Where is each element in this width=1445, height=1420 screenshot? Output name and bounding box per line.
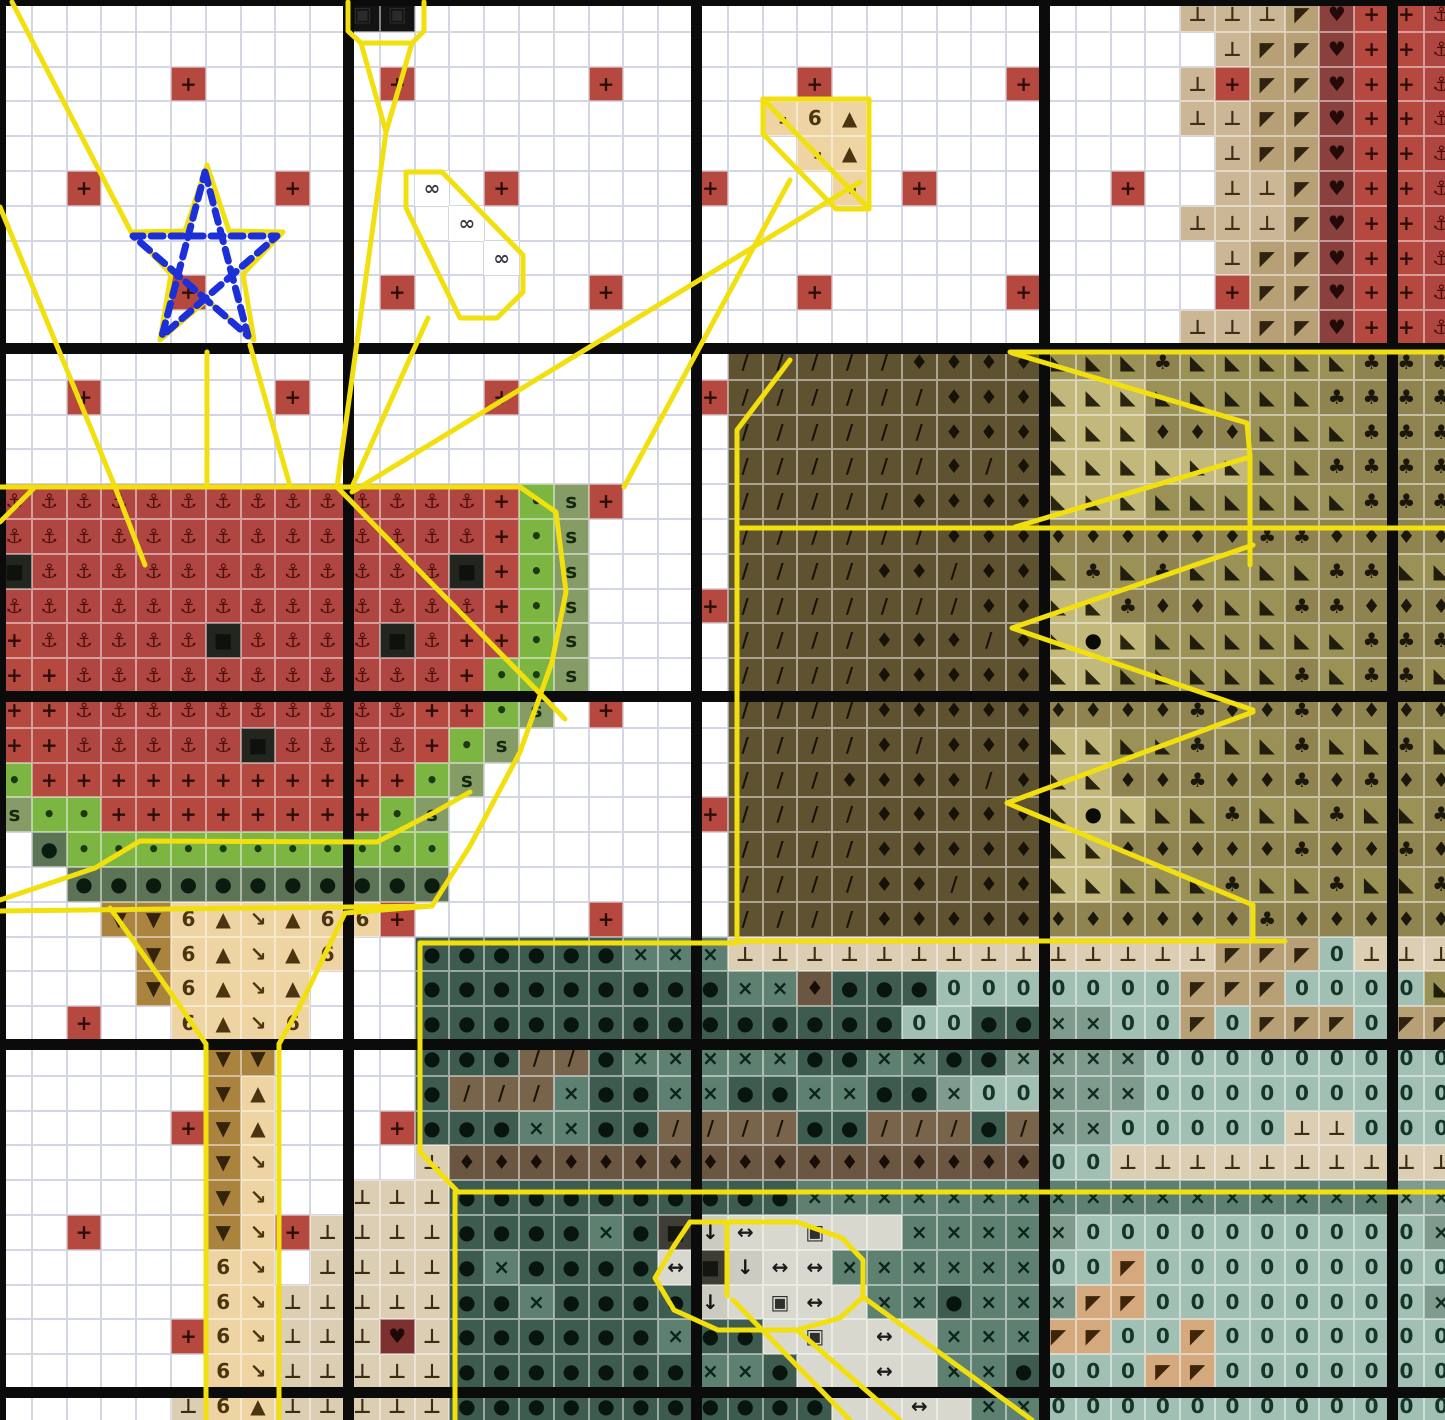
stitch-cell[interactable] xyxy=(658,902,693,937)
stitch-cell[interactable]: ▼ xyxy=(206,1215,241,1250)
stitch-cell[interactable]: ⚓ xyxy=(275,623,310,658)
stitch-cell[interactable]: ⊥ xyxy=(415,1215,450,1250)
stitch-cell[interactable]: ♣ xyxy=(1285,658,1320,693)
stitch-cell[interactable]: ♦ xyxy=(1145,415,1180,450)
stitch-cell[interactable]: ♦ xyxy=(937,763,972,798)
stitch-cell[interactable] xyxy=(310,275,345,310)
stitch-cell[interactable]: ♦ xyxy=(832,1145,867,1180)
stitch-cell[interactable] xyxy=(275,32,310,67)
stitch-cell[interactable]: • xyxy=(310,832,345,867)
stitch-cell[interactable]: • xyxy=(206,832,241,867)
stitch-cell[interactable]: ⚓ xyxy=(101,589,136,624)
stitch-cell[interactable]: + xyxy=(275,171,310,206)
stitch-cell[interactable]: • xyxy=(380,797,415,832)
stitch-cell[interactable]: × xyxy=(1076,1180,1111,1215)
stitch-cell[interactable]: 6 xyxy=(310,937,345,972)
stitch-cell[interactable]: ● xyxy=(763,1006,798,1041)
stitch-cell[interactable]: ↘ xyxy=(241,1215,276,1250)
stitch-cell[interactable]: / xyxy=(728,623,763,658)
stitch-cell[interactable] xyxy=(937,171,972,206)
stitch-cell[interactable]: ♦ xyxy=(937,484,972,519)
stitch-cell[interactable]: ♦ xyxy=(484,1145,519,1180)
stitch-cell[interactable]: ⚓ xyxy=(1424,206,1445,241)
stitch-cell[interactable]: ◣ xyxy=(1111,867,1146,902)
stitch-cell[interactable] xyxy=(1145,241,1180,276)
stitch-cell[interactable] xyxy=(275,1111,310,1146)
stitch-cell[interactable]: ◣ xyxy=(1319,658,1354,693)
stitch-cell[interactable] xyxy=(101,1319,136,1354)
stitch-cell[interactable]: ● xyxy=(519,1180,554,1215)
stitch-cell[interactable]: • xyxy=(171,832,206,867)
stitch-cell[interactable]: ● xyxy=(797,1111,832,1146)
stitch-cell[interactable]: / xyxy=(728,658,763,693)
stitch-cell[interactable] xyxy=(310,1076,345,1111)
stitch-cell[interactable]: ◤ xyxy=(1285,136,1320,171)
stitch-cell[interactable]: ⚓ xyxy=(101,484,136,519)
stitch-cell[interactable]: ♦ xyxy=(763,1145,798,1180)
stitch-cell[interactable]: + xyxy=(797,67,832,102)
stitch-cell[interactable]: ↘ xyxy=(241,902,276,937)
stitch-cell[interactable]: × xyxy=(1006,1250,1041,1285)
stitch-cell[interactable]: / xyxy=(832,867,867,902)
stitch-cell[interactable]: ♥ xyxy=(1319,101,1354,136)
stitch-cell[interactable]: ♦ xyxy=(867,554,902,589)
stitch-cell[interactable] xyxy=(832,1319,867,1354)
stitch-cell[interactable]: ♥ xyxy=(380,1319,415,1354)
stitch-cell[interactable]: ⚓ xyxy=(32,554,67,589)
stitch-cell[interactable]: + xyxy=(484,623,519,658)
stitch-cell[interactable] xyxy=(623,728,658,763)
stitch-cell[interactable]: × xyxy=(554,1111,589,1146)
stitch-cell[interactable]: ◤ xyxy=(1285,101,1320,136)
stitch-cell[interactable]: + xyxy=(484,554,519,589)
stitch-cell[interactable]: ⊥ xyxy=(310,1215,345,1250)
stitch-cell[interactable] xyxy=(171,310,206,345)
stitch-cell[interactable]: 0 xyxy=(1319,1354,1354,1389)
stitch-cell[interactable]: / xyxy=(797,484,832,519)
stitch-cell[interactable]: × xyxy=(1076,1076,1111,1111)
stitch-cell[interactable]: ◣ xyxy=(1285,449,1320,484)
stitch-cell[interactable] xyxy=(380,415,415,450)
stitch-cell[interactable]: × xyxy=(797,1180,832,1215)
stitch-cell[interactable] xyxy=(1111,101,1146,136)
stitch-cell[interactable]: 0 xyxy=(1215,1354,1250,1389)
stitch-cell[interactable]: × xyxy=(1111,1180,1146,1215)
stitch-cell[interactable]: 0 xyxy=(1145,1076,1180,1111)
stitch-cell[interactable] xyxy=(484,763,519,798)
stitch-cell[interactable]: ♦ xyxy=(1006,763,1041,798)
stitch-cell[interactable] xyxy=(415,310,450,345)
stitch-cell[interactable] xyxy=(589,832,624,867)
stitch-cell[interactable]: / xyxy=(763,763,798,798)
stitch-cell[interactable] xyxy=(310,1111,345,1146)
stitch-cell[interactable] xyxy=(310,415,345,450)
stitch-cell[interactable]: ● xyxy=(658,1006,693,1041)
stitch-cell[interactable]: ● xyxy=(449,1285,484,1320)
stitch-cell[interactable]: 0 xyxy=(937,971,972,1006)
stitch-cell[interactable]: ◣ xyxy=(1111,797,1146,832)
stitch-cell[interactable]: • xyxy=(101,832,136,867)
stitch-cell[interactable]: ● xyxy=(658,971,693,1006)
stitch-cell[interactable] xyxy=(67,1285,102,1320)
stitch-cell[interactable] xyxy=(658,67,693,102)
stitch-cell[interactable]: ♦ xyxy=(867,658,902,693)
stitch-cell[interactable]: 0 xyxy=(1250,1076,1285,1111)
stitch-cell[interactable] xyxy=(380,380,415,415)
stitch-cell[interactable]: ♦ xyxy=(902,867,937,902)
stitch-cell[interactable]: ◣ xyxy=(1319,728,1354,763)
stitch-cell[interactable]: / xyxy=(728,449,763,484)
stitch-cell[interactable]: ⊥ xyxy=(1215,241,1250,276)
stitch-cell[interactable] xyxy=(32,1250,67,1285)
stitch-cell[interactable]: ● xyxy=(67,867,102,902)
stitch-cell[interactable]: ♣ xyxy=(1111,589,1146,624)
stitch-cell[interactable]: ◣ xyxy=(1319,484,1354,519)
stitch-cell[interactable] xyxy=(554,275,589,310)
stitch-cell[interactable]: • xyxy=(519,623,554,658)
stitch-cell[interactable] xyxy=(101,206,136,241)
stitch-cell[interactable]: ♥ xyxy=(1319,136,1354,171)
stitch-cell[interactable]: ● xyxy=(623,1285,658,1320)
stitch-cell[interactable]: 0 xyxy=(1006,971,1041,1006)
stitch-cell[interactable]: ♦ xyxy=(1076,902,1111,937)
stitch-cell[interactable]: ◣ xyxy=(1111,380,1146,415)
stitch-cell[interactable]: ● xyxy=(589,1111,624,1146)
stitch-cell[interactable]: ⊥ xyxy=(380,1285,415,1320)
stitch-cell[interactable] xyxy=(832,310,867,345)
stitch-cell[interactable] xyxy=(449,902,484,937)
stitch-cell[interactable]: / xyxy=(937,554,972,589)
stitch-cell[interactable]: ⚓ xyxy=(32,484,67,519)
stitch-cell[interactable]: ⚓ xyxy=(380,554,415,589)
stitch-cell[interactable] xyxy=(763,1215,798,1250)
stitch-cell[interactable] xyxy=(832,1215,867,1250)
stitch-cell[interactable] xyxy=(275,101,310,136)
stitch-cell[interactable]: ◣ xyxy=(1250,380,1285,415)
stitch-cell[interactable] xyxy=(867,310,902,345)
stitch-cell[interactable]: ⊥ xyxy=(1180,1145,1215,1180)
stitch-cell[interactable]: ♦ xyxy=(1424,832,1445,867)
stitch-cell[interactable] xyxy=(241,275,276,310)
stitch-cell[interactable]: × xyxy=(832,1076,867,1111)
stitch-cell[interactable]: / xyxy=(797,902,832,937)
stitch-cell[interactable]: + xyxy=(1006,275,1041,310)
stitch-cell[interactable]: • xyxy=(519,519,554,554)
stitch-cell[interactable]: ⚓ xyxy=(32,519,67,554)
stitch-cell[interactable] xyxy=(658,206,693,241)
stitch-cell[interactable]: / xyxy=(763,589,798,624)
stitch-cell[interactable]: 0 xyxy=(1076,1145,1111,1180)
stitch-cell[interactable]: / xyxy=(867,449,902,484)
stitch-cell[interactable]: ↘ xyxy=(241,937,276,972)
stitch-cell[interactable]: ⚓ xyxy=(136,484,171,519)
stitch-cell[interactable]: ● xyxy=(763,1180,798,1215)
stitch-cell[interactable]: 0 xyxy=(1250,1215,1285,1250)
stitch-cell[interactable]: × xyxy=(971,1250,1006,1285)
stitch-cell[interactable]: ◤ xyxy=(1215,971,1250,1006)
stitch-cell[interactable]: ▼ xyxy=(136,971,171,1006)
stitch-cell[interactable]: 0 xyxy=(1424,1319,1445,1354)
stitch-cell[interactable]: ● xyxy=(554,971,589,1006)
stitch-cell[interactable]: ◤ xyxy=(1180,1354,1215,1389)
stitch-cell[interactable]: ◣ xyxy=(1285,554,1320,589)
stitch-cell[interactable]: ⚓ xyxy=(310,554,345,589)
stitch-cell[interactable]: + xyxy=(32,658,67,693)
stitch-cell[interactable]: ⚓ xyxy=(415,519,450,554)
stitch-cell[interactable] xyxy=(67,415,102,450)
stitch-cell[interactable]: • xyxy=(275,832,310,867)
stitch-cell[interactable] xyxy=(658,136,693,171)
stitch-cell[interactable] xyxy=(136,1145,171,1180)
stitch-cell[interactable]: / xyxy=(763,797,798,832)
stitch-cell[interactable]: ⊥ xyxy=(1424,1145,1445,1180)
stitch-cell[interactable]: s xyxy=(554,658,589,693)
stitch-cell[interactable]: ● xyxy=(484,1006,519,1041)
stitch-cell[interactable]: ● xyxy=(449,971,484,1006)
stitch-cell[interactable]: ● xyxy=(589,1250,624,1285)
stitch-cell[interactable]: ♦ xyxy=(1006,728,1041,763)
stitch-cell[interactable]: ◣ xyxy=(1250,484,1285,519)
stitch-cell[interactable]: ● xyxy=(380,867,415,902)
stitch-cell[interactable]: / xyxy=(937,589,972,624)
stitch-cell[interactable] xyxy=(971,32,1006,67)
stitch-cell[interactable]: / xyxy=(937,867,972,902)
stitch-cell[interactable] xyxy=(171,206,206,241)
stitch-cell[interactable] xyxy=(589,589,624,624)
stitch-cell[interactable]: ♦ xyxy=(1006,484,1041,519)
stitch-cell[interactable]: ⚓ xyxy=(136,658,171,693)
stitch-cell[interactable]: 0 xyxy=(1285,971,1320,1006)
stitch-cell[interactable] xyxy=(832,1285,867,1320)
stitch-cell[interactable]: 0 xyxy=(1076,1354,1111,1389)
stitch-cell[interactable]: + xyxy=(67,380,102,415)
stitch-cell[interactable]: ● xyxy=(623,1319,658,1354)
stitch-cell[interactable]: ⊥ xyxy=(310,1285,345,1320)
stitch-cell[interactable]: / xyxy=(867,380,902,415)
stitch-cell[interactable]: ● xyxy=(1076,797,1111,832)
stitch-cell[interactable] xyxy=(275,136,310,171)
stitch-cell[interactable] xyxy=(241,101,276,136)
stitch-cell[interactable] xyxy=(32,1076,67,1111)
stitch-cell[interactable] xyxy=(867,171,902,206)
stitch-cell[interactable] xyxy=(937,275,972,310)
stitch-cell[interactable] xyxy=(589,32,624,67)
stitch-cell[interactable]: + xyxy=(1354,241,1389,276)
stitch-cell[interactable]: ◣ xyxy=(1111,554,1146,589)
stitch-cell[interactable]: × xyxy=(937,1354,972,1389)
stitch-cell[interactable]: + xyxy=(589,484,624,519)
stitch-cell[interactable] xyxy=(380,449,415,484)
stitch-cell[interactable]: ● xyxy=(589,937,624,972)
stitch-cell[interactable]: / xyxy=(728,728,763,763)
stitch-cell[interactable]: 0 xyxy=(1424,1111,1445,1146)
stitch-cell[interactable] xyxy=(415,67,450,102)
stitch-cell[interactable]: s xyxy=(554,554,589,589)
stitch-cell[interactable] xyxy=(554,136,589,171)
stitch-cell[interactable]: / xyxy=(797,797,832,832)
stitch-cell[interactable]: / xyxy=(797,554,832,589)
stitch-cell[interactable]: 6 xyxy=(206,1250,241,1285)
stitch-cell[interactable]: ♣ xyxy=(1354,484,1389,519)
stitch-cell[interactable]: ⚓ xyxy=(67,623,102,658)
stitch-cell[interactable] xyxy=(310,67,345,102)
stitch-cell[interactable] xyxy=(1180,136,1215,171)
stitch-cell[interactable]: ↘ xyxy=(763,101,798,136)
stitch-cell[interactable]: ◤ xyxy=(1250,275,1285,310)
stitch-cell[interactable]: ♣ xyxy=(1354,658,1389,693)
stitch-cell[interactable] xyxy=(589,136,624,171)
stitch-cell[interactable]: ⚓ xyxy=(206,658,241,693)
stitch-cell[interactable]: ↔ xyxy=(763,1250,798,1285)
stitch-cell[interactable] xyxy=(1111,136,1146,171)
stitch-cell[interactable] xyxy=(519,380,554,415)
stitch-cell[interactable] xyxy=(519,415,554,450)
stitch-cell[interactable]: 0 xyxy=(1354,1285,1389,1320)
stitch-cell[interactable] xyxy=(658,554,693,589)
stitch-cell[interactable]: × xyxy=(1250,1180,1285,1215)
stitch-cell[interactable]: / xyxy=(728,763,763,798)
stitch-cell[interactable] xyxy=(275,1250,310,1285)
stitch-cell[interactable]: ♦ xyxy=(1145,589,1180,624)
stitch-cell[interactable]: ◣ xyxy=(1145,728,1180,763)
stitch-cell[interactable]: + xyxy=(67,1215,102,1250)
stitch-cell[interactable]: ↘ xyxy=(832,171,867,206)
stitch-cell[interactable]: / xyxy=(797,415,832,450)
stitch-cell[interactable] xyxy=(658,519,693,554)
stitch-cell[interactable]: ♣ xyxy=(1285,728,1320,763)
stitch-cell[interactable]: × xyxy=(1424,1180,1445,1215)
stitch-cell[interactable]: + xyxy=(171,67,206,102)
stitch-cell[interactable]: ♦ xyxy=(1319,902,1354,937)
stitch-cell[interactable]: • xyxy=(136,832,171,867)
stitch-cell[interactable] xyxy=(554,171,589,206)
stitch-cell[interactable]: s xyxy=(554,484,589,519)
stitch-cell[interactable]: ◣ xyxy=(1424,728,1445,763)
stitch-cell[interactable]: ⚓ xyxy=(67,519,102,554)
stitch-cell[interactable]: ♦ xyxy=(937,902,972,937)
stitch-cell[interactable] xyxy=(101,1076,136,1111)
stitch-cell[interactable]: / xyxy=(797,623,832,658)
stitch-cell[interactable]: + xyxy=(1111,171,1146,206)
stitch-cell[interactable]: ⊥ xyxy=(380,1250,415,1285)
stitch-cell[interactable] xyxy=(136,241,171,276)
stitch-cell[interactable]: ⚓ xyxy=(275,554,310,589)
stitch-cell[interactable]: ♦ xyxy=(1180,832,1215,867)
stitch-cell[interactable]: × xyxy=(867,1285,902,1320)
stitch-cell[interactable] xyxy=(206,101,241,136)
stitch-cell[interactable] xyxy=(101,971,136,1006)
stitch-cell[interactable]: ♦ xyxy=(1285,902,1320,937)
stitch-cell[interactable]: / xyxy=(902,589,937,624)
stitch-cell[interactable]: ⚓ xyxy=(415,589,450,624)
stitch-cell[interactable]: ◣ xyxy=(1215,589,1250,624)
stitch-cell[interactable]: 0 xyxy=(1180,1285,1215,1320)
stitch-cell[interactable] xyxy=(484,67,519,102)
stitch-cell[interactable]: ⊥ xyxy=(1180,206,1215,241)
stitch-cell[interactable]: ♦ xyxy=(1145,832,1180,867)
stitch-cell[interactable] xyxy=(589,554,624,589)
stitch-cell[interactable] xyxy=(206,32,241,67)
stitch-cell[interactable]: ♥ xyxy=(1319,241,1354,276)
stitch-cell[interactable]: ◣ xyxy=(1111,658,1146,693)
stitch-cell[interactable]: ◣ xyxy=(1145,658,1180,693)
stitch-cell[interactable] xyxy=(554,449,589,484)
stitch-cell[interactable] xyxy=(484,902,519,937)
stitch-cell[interactable]: × xyxy=(519,1285,554,1320)
stitch-cell[interactable] xyxy=(136,32,171,67)
stitch-cell[interactable] xyxy=(1006,101,1041,136)
stitch-cell[interactable]: 0 xyxy=(1145,971,1180,1006)
stitch-cell[interactable]: 0 xyxy=(1215,1319,1250,1354)
stitch-cell[interactable] xyxy=(136,310,171,345)
stitch-cell[interactable] xyxy=(32,415,67,450)
stitch-cell[interactable]: × xyxy=(1285,1180,1320,1215)
stitch-cell[interactable]: 0 xyxy=(1354,1215,1389,1250)
stitch-cell[interactable]: ♦ xyxy=(1250,763,1285,798)
stitch-cell[interactable]: ● xyxy=(449,1180,484,1215)
stitch-cell[interactable] xyxy=(971,206,1006,241)
stitch-cell[interactable] xyxy=(623,241,658,276)
stitch-cell[interactable]: + xyxy=(171,1111,206,1146)
stitch-cell[interactable]: ◣ xyxy=(1076,484,1111,519)
stitch-cell[interactable]: ◣ xyxy=(1180,484,1215,519)
stitch-cell[interactable]: ⚓ xyxy=(275,658,310,693)
stitch-cell[interactable] xyxy=(67,310,102,345)
stitch-cell[interactable]: ♦ xyxy=(1424,589,1445,624)
stitch-cell[interactable] xyxy=(32,971,67,1006)
stitch-cell[interactable] xyxy=(32,241,67,276)
stitch-cell[interactable]: 0 xyxy=(971,1076,1006,1111)
stitch-cell[interactable] xyxy=(623,449,658,484)
stitch-cell[interactable] xyxy=(658,658,693,693)
stitch-cell[interactable]: ⚓ xyxy=(206,728,241,763)
stitch-cell[interactable]: + xyxy=(484,484,519,519)
stitch-cell[interactable] xyxy=(171,241,206,276)
stitch-cell[interactable] xyxy=(241,241,276,276)
stitch-cell[interactable]: ⚓ xyxy=(415,484,450,519)
stitch-cell[interactable]: 0 xyxy=(1006,1076,1041,1111)
stitch-cell[interactable]: / xyxy=(832,832,867,867)
stitch-cell[interactable]: ↘ xyxy=(241,1006,276,1041)
stitch-cell[interactable]: ▼ xyxy=(206,1180,241,1215)
stitch-cell[interactable]: ♦ xyxy=(902,658,937,693)
stitch-cell[interactable]: 0 xyxy=(1145,1111,1180,1146)
stitch-cell[interactable] xyxy=(241,67,276,102)
stitch-cell[interactable] xyxy=(484,449,519,484)
stitch-cell[interactable]: ♦ xyxy=(971,797,1006,832)
stitch-cell[interactable] xyxy=(484,832,519,867)
stitch-cell[interactable]: ♦ xyxy=(937,415,972,450)
stitch-cell[interactable]: × xyxy=(1006,1319,1041,1354)
stitch-cell[interactable]: + xyxy=(589,902,624,937)
stitch-cell[interactable]: ● xyxy=(867,971,902,1006)
stitch-cell[interactable]: ⚓ xyxy=(101,728,136,763)
stitch-cell[interactable] xyxy=(902,1319,937,1354)
stitch-cell[interactable] xyxy=(1006,136,1041,171)
stitch-cell[interactable]: ♦ xyxy=(937,623,972,658)
stitch-cell[interactable] xyxy=(136,171,171,206)
stitch-cell[interactable]: / xyxy=(728,484,763,519)
stitch-cell[interactable] xyxy=(32,380,67,415)
stitch-cell[interactable]: ⊥ xyxy=(1354,937,1389,972)
stitch-cell[interactable]: ♥ xyxy=(1319,32,1354,67)
stitch-cell[interactable]: 0 xyxy=(1285,1285,1320,1320)
stitch-cell[interactable]: ● xyxy=(554,1285,589,1320)
stitch-cell[interactable] xyxy=(449,415,484,450)
stitch-cell[interactable] xyxy=(449,832,484,867)
stitch-cell[interactable] xyxy=(832,1354,867,1389)
stitch-cell[interactable]: ● xyxy=(310,867,345,902)
